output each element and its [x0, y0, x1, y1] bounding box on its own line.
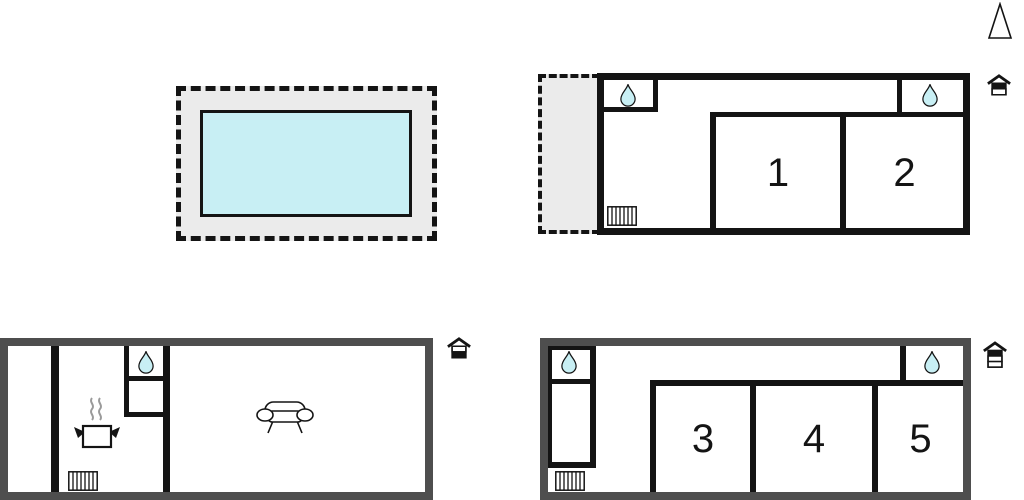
house-ground-floor-icon [446, 337, 472, 361]
water-drop-icon [561, 350, 577, 374]
sofa-icon [256, 400, 314, 436]
upper-floor-plan: 1 2 [597, 73, 970, 235]
wall [897, 80, 902, 115]
water-drop-icon [922, 83, 938, 107]
water-drop-icon [924, 350, 940, 374]
water-drop-icon [620, 83, 636, 107]
floorplan-canvas: 1 2 [0, 0, 1024, 500]
wall [548, 462, 596, 468]
room-3-label: 3 [656, 386, 750, 492]
radiator-icon [607, 206, 637, 226]
north-arrow-icon [986, 2, 1014, 40]
wall [124, 346, 129, 417]
annex-floor-plan: 3 4 5 [540, 338, 971, 500]
wall [604, 107, 658, 112]
room-2-label: 2 [846, 117, 963, 228]
wall [51, 346, 59, 492]
ground-floor-plan [0, 338, 433, 500]
house-annex-floor-icon [982, 341, 1008, 371]
water-drop-icon [138, 350, 154, 374]
wall [163, 346, 170, 492]
cooking-pot-icon [73, 396, 121, 450]
radiator-icon [68, 471, 98, 491]
radiator-icon [555, 471, 585, 491]
house-upper-floor-icon [986, 74, 1012, 98]
wall [548, 379, 596, 384]
wall [900, 346, 906, 386]
pool-terrace-area [176, 86, 437, 241]
upper-floor-terrace [538, 74, 600, 234]
room-5-label: 5 [878, 386, 963, 492]
room-1-label: 1 [716, 117, 840, 228]
swimming-pool [200, 110, 412, 217]
wall [590, 346, 596, 468]
room-4-label: 4 [756, 386, 872, 492]
wall [548, 346, 552, 468]
